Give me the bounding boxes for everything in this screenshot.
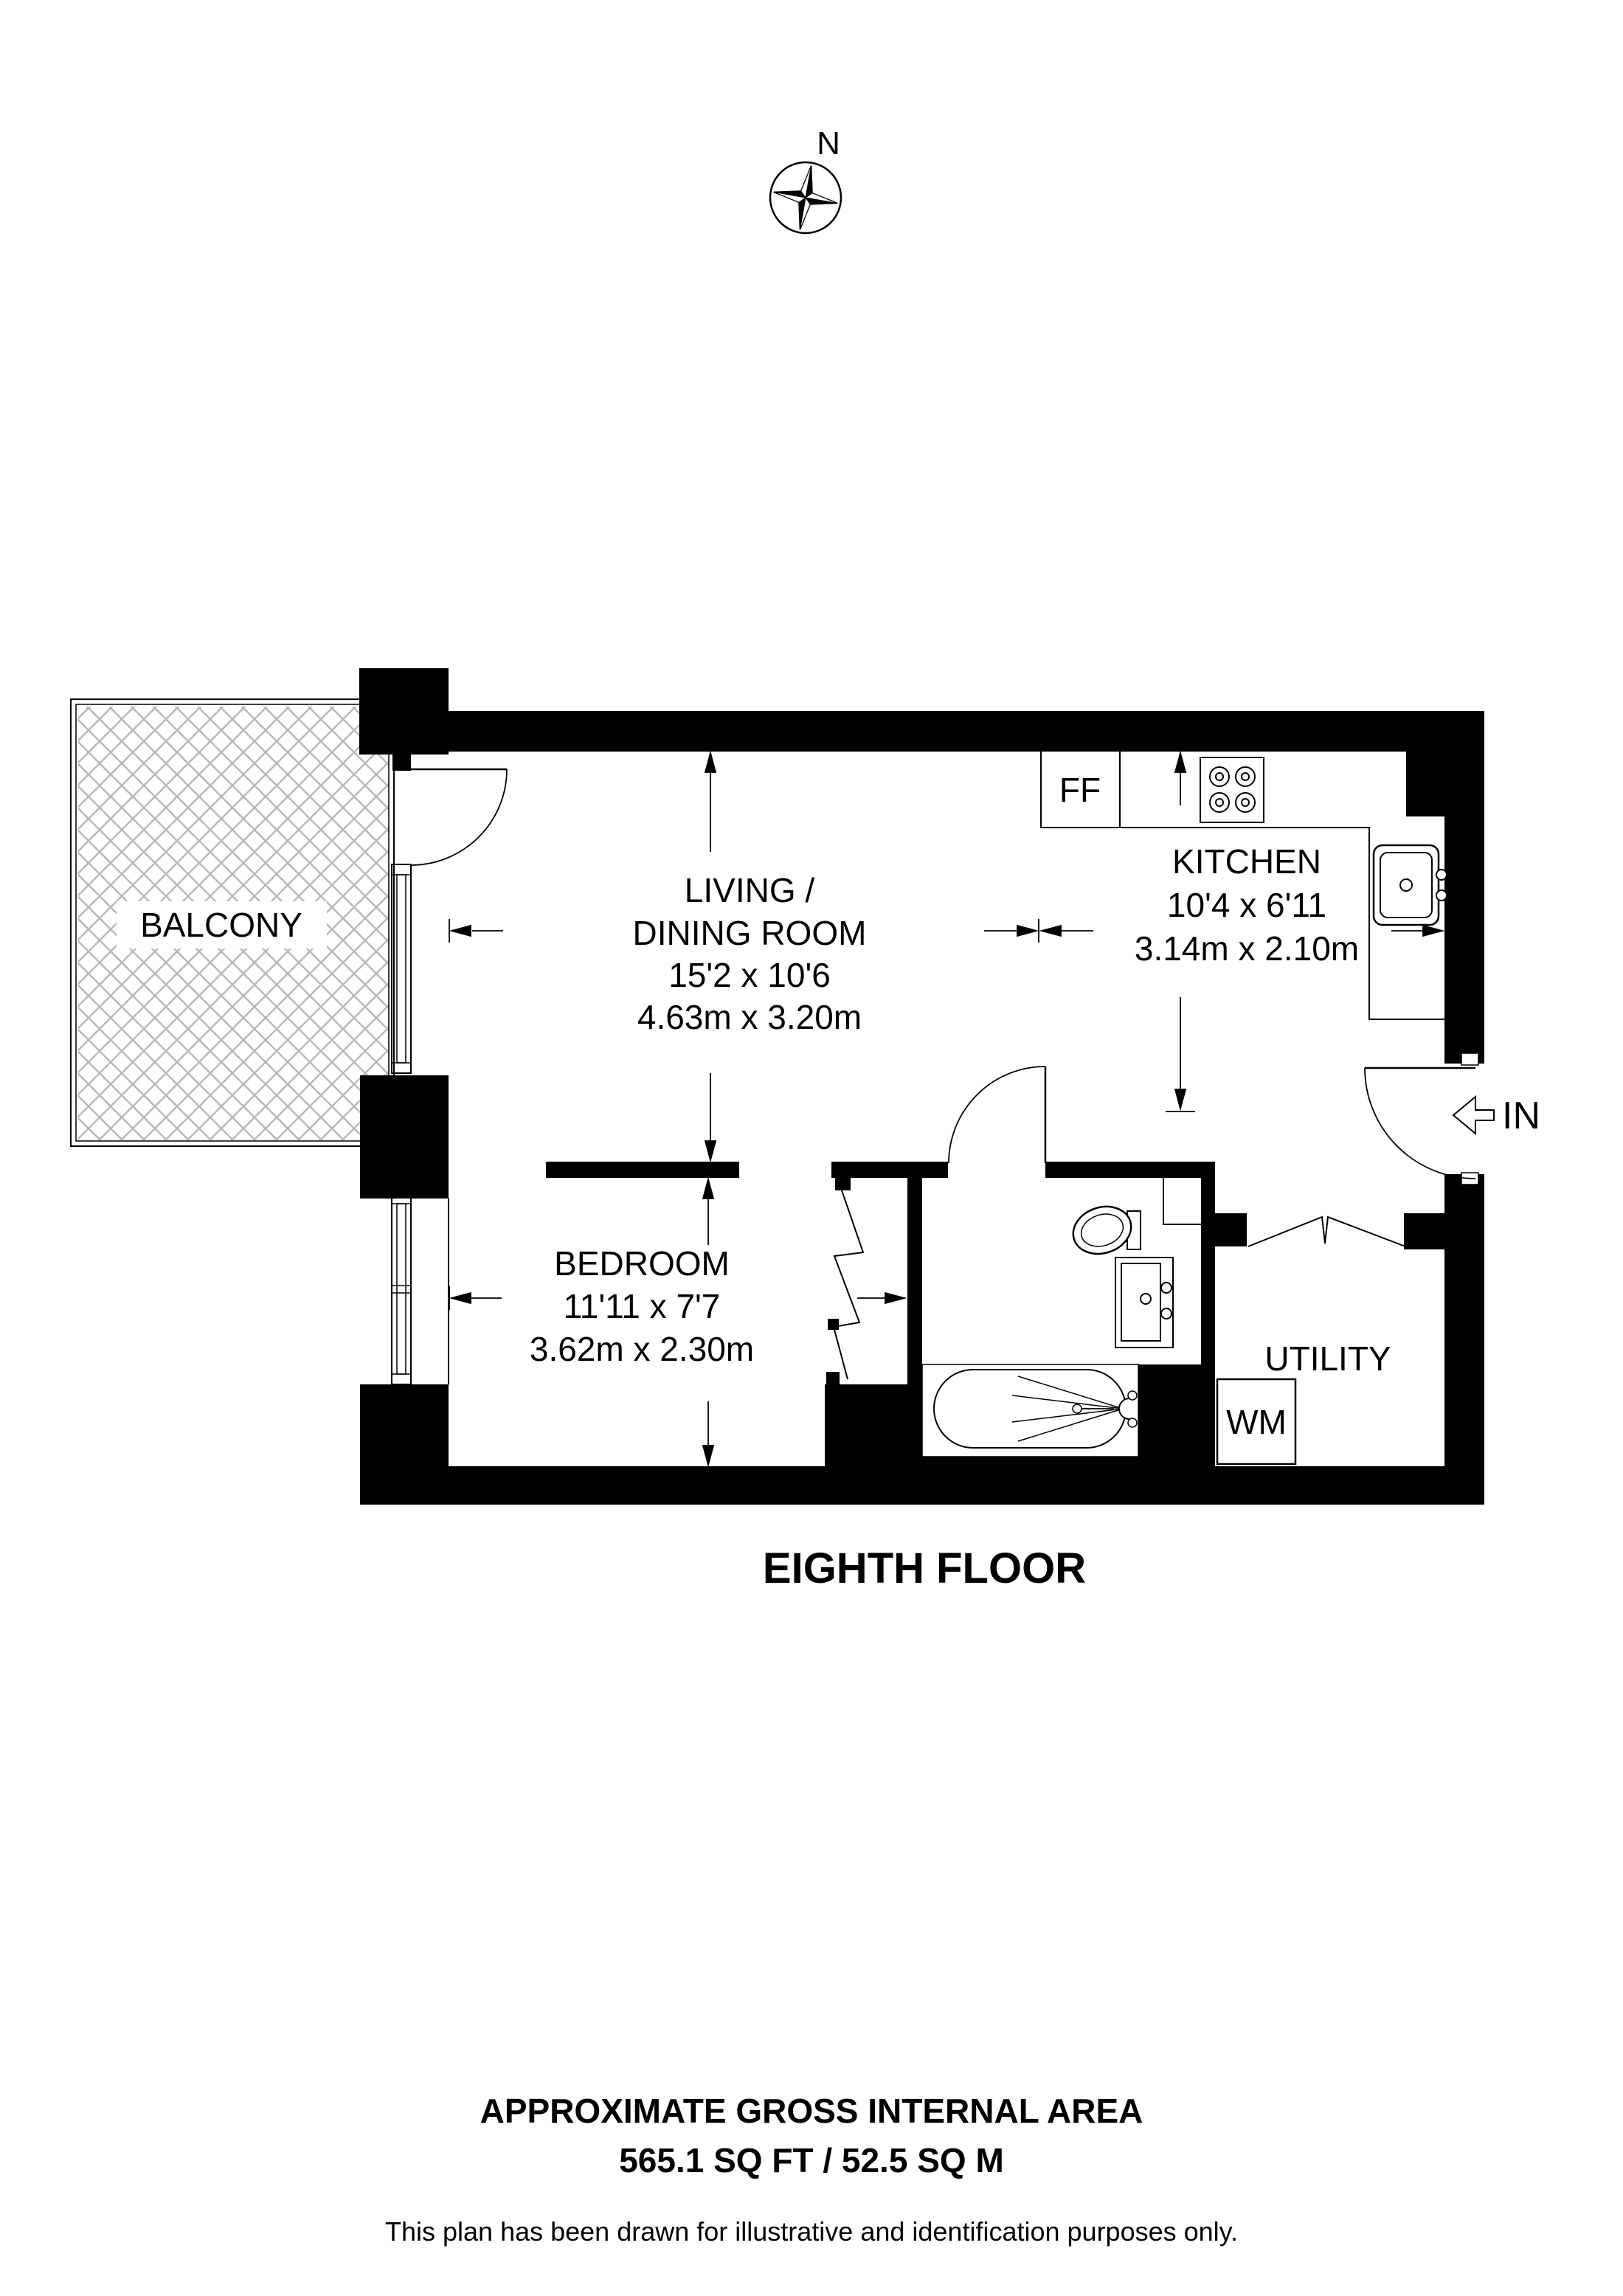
wall-left-block-upper [360, 1075, 449, 1199]
entrance-door-swing [1365, 1068, 1475, 1179]
bathroom-door-swing [949, 1067, 1045, 1163]
compass-north-label: N [817, 125, 840, 162]
living-name-line2: DINING ROOM [633, 914, 867, 952]
wall-balcony-door-step [392, 755, 411, 771]
kitchen-dims-imperial: 10'4 x 6'11 [1167, 886, 1326, 924]
floor-title: EIGHTH FLOOR [763, 1544, 1086, 1592]
wall-bathroom-top-right [1045, 1162, 1215, 1178]
wall-right-upper [1444, 752, 1484, 1064]
wall-bath-right-block [1138, 1364, 1215, 1457]
utility-label: UTILITY [1264, 1339, 1391, 1378]
bathroom-wall-recess [1163, 1178, 1201, 1224]
wall-bath-bottom [907, 1457, 1215, 1505]
bedroom-window [392, 1193, 449, 1384]
wall-utility-right-stub [1404, 1213, 1444, 1249]
washing-machine-label: WM [1226, 1403, 1287, 1441]
entrance-jamb-top [1461, 1053, 1478, 1065]
balcony-door-swing [411, 769, 507, 865]
entrance-arrow-icon [1453, 1097, 1494, 1134]
living-room-label: LIVING / DINING ROOM 15'2 x 10'6 4.63m x… [633, 871, 867, 1036]
wall-right-step [1406, 752, 1444, 816]
kitchen-name: KITCHEN [1172, 842, 1321, 881]
utility-folding-doors [1248, 1217, 1405, 1246]
footer-disclaimer: This plan has been drawn for illustrativ… [385, 2216, 1238, 2247]
fridge-freezer-label: FF [1059, 771, 1101, 809]
balcony-label: BALCONY [140, 906, 302, 944]
bedroom-dims-imperial: 11'11 x 7'7 [564, 1287, 721, 1325]
wall-right-lower [1444, 1174, 1484, 1505]
kitchen-dims-metric: 3.14m x 2.10m [1135, 929, 1359, 968]
wall-living-bedroom-stub [546, 1162, 739, 1178]
living-dims-metric: 4.63m x 3.20m [637, 998, 862, 1036]
bedroom-label: BEDROOM 11'11 x 7'7 3.62m x 2.30m [530, 1244, 754, 1368]
living-dims-imperial: 15'2 x 10'6 [668, 956, 831, 994]
kitchen-sink-icon [1374, 845, 1447, 925]
kitchen-label: KITCHEN 10'4 x 6'11 3.14m x 2.10m [1135, 842, 1359, 968]
bath-icon [922, 1364, 1138, 1457]
wall-utility-left-stub [1215, 1213, 1247, 1246]
footer-area-heading: APPROXIMATE GROSS INTERNAL AREA [480, 2092, 1143, 2130]
bedroom-name: BEDROOM [554, 1244, 730, 1283]
wall-bathroom-top-left [831, 1162, 948, 1178]
floorplan-canvas: N BALCONY [0, 0, 1623, 2296]
wall-top-left-corner [359, 668, 449, 755]
footer-area-value: 565.1 SQ FT / 52.5 SQ M [619, 2141, 1004, 2179]
bathroom-basin-icon [1115, 1258, 1173, 1348]
wall-left-block-lower [360, 1384, 449, 1466]
entrance-label: IN [1502, 1095, 1540, 1137]
toilet-icon [1067, 1199, 1141, 1261]
footer: APPROXIMATE GROSS INTERNAL AREA 565.1 SQ… [385, 2092, 1238, 2247]
wall-bedroom-door-block [825, 1384, 921, 1466]
wall-bathroom-right [1201, 1178, 1215, 1364]
balcony: BALCONY [71, 699, 394, 1146]
wall-top [443, 711, 1484, 752]
bedroom-folding-door [826, 1177, 863, 1384]
bedroom-dims-metric: 3.62m x 2.30m [530, 1330, 754, 1368]
hob-icon [1200, 757, 1264, 822]
living-name-line1: LIVING / [685, 871, 815, 909]
compass-icon: N [770, 125, 841, 233]
